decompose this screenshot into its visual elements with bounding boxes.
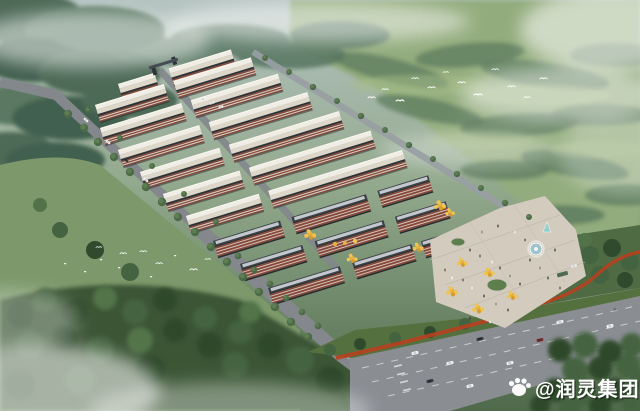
watermark-text: @润灵集团 — [535, 377, 640, 401]
planting-bed — [451, 238, 465, 246]
rooftop-golden-tree — [343, 241, 347, 245]
scene-svg: @润灵集团 @润灵集团 — [0, 0, 640, 411]
rooftop-golden-tree — [353, 239, 357, 243]
rooftop-golden-tree — [333, 242, 337, 246]
aerial-rendering: @润灵集团 @润灵集团 — [0, 0, 640, 411]
planting-bed — [487, 279, 507, 291]
